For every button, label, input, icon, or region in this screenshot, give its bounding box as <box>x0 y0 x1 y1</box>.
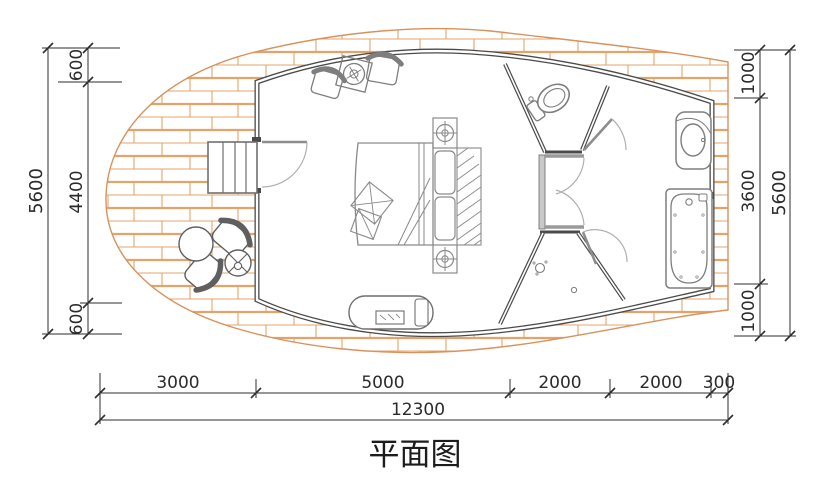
tub-faucet-icon <box>699 194 707 201</box>
dim-label: 5000 <box>361 373 404 393</box>
dim-label-bottom-total: 12300 <box>391 400 445 420</box>
dim-label: 600 <box>67 49 87 81</box>
building-shell <box>250 51 714 335</box>
dim-label: 1000 <box>739 51 759 94</box>
dim-label: 1000 <box>739 289 759 332</box>
dim-label: 3000 <box>156 373 199 393</box>
floor-plan-canvas: 5600 600 4400 600 1000 3600 1000 5600 30… <box>0 0 837 496</box>
page-title: 平面图 <box>369 437 462 473</box>
dim-label: 600 <box>67 303 87 335</box>
deck-cross-table <box>225 250 251 276</box>
dim-label: 3600 <box>739 169 759 212</box>
bathtub <box>666 189 712 288</box>
dim-label: 2000 <box>538 373 581 393</box>
dim-label: 4400 <box>67 170 87 213</box>
sink-vanity <box>676 112 711 169</box>
dim-label: 2000 <box>639 373 682 393</box>
entrance-steps <box>208 142 257 193</box>
tv-console <box>349 296 433 329</box>
deck-round-table <box>179 227 213 261</box>
floor-plan-page: 5600 600 4400 600 1000 3600 1000 5600 30… <box>0 0 837 496</box>
dim-label-right-total: 5600 <box>769 170 790 216</box>
dim-label-left-total: 5600 <box>26 168 47 214</box>
dim-label: 300 <box>703 373 735 393</box>
